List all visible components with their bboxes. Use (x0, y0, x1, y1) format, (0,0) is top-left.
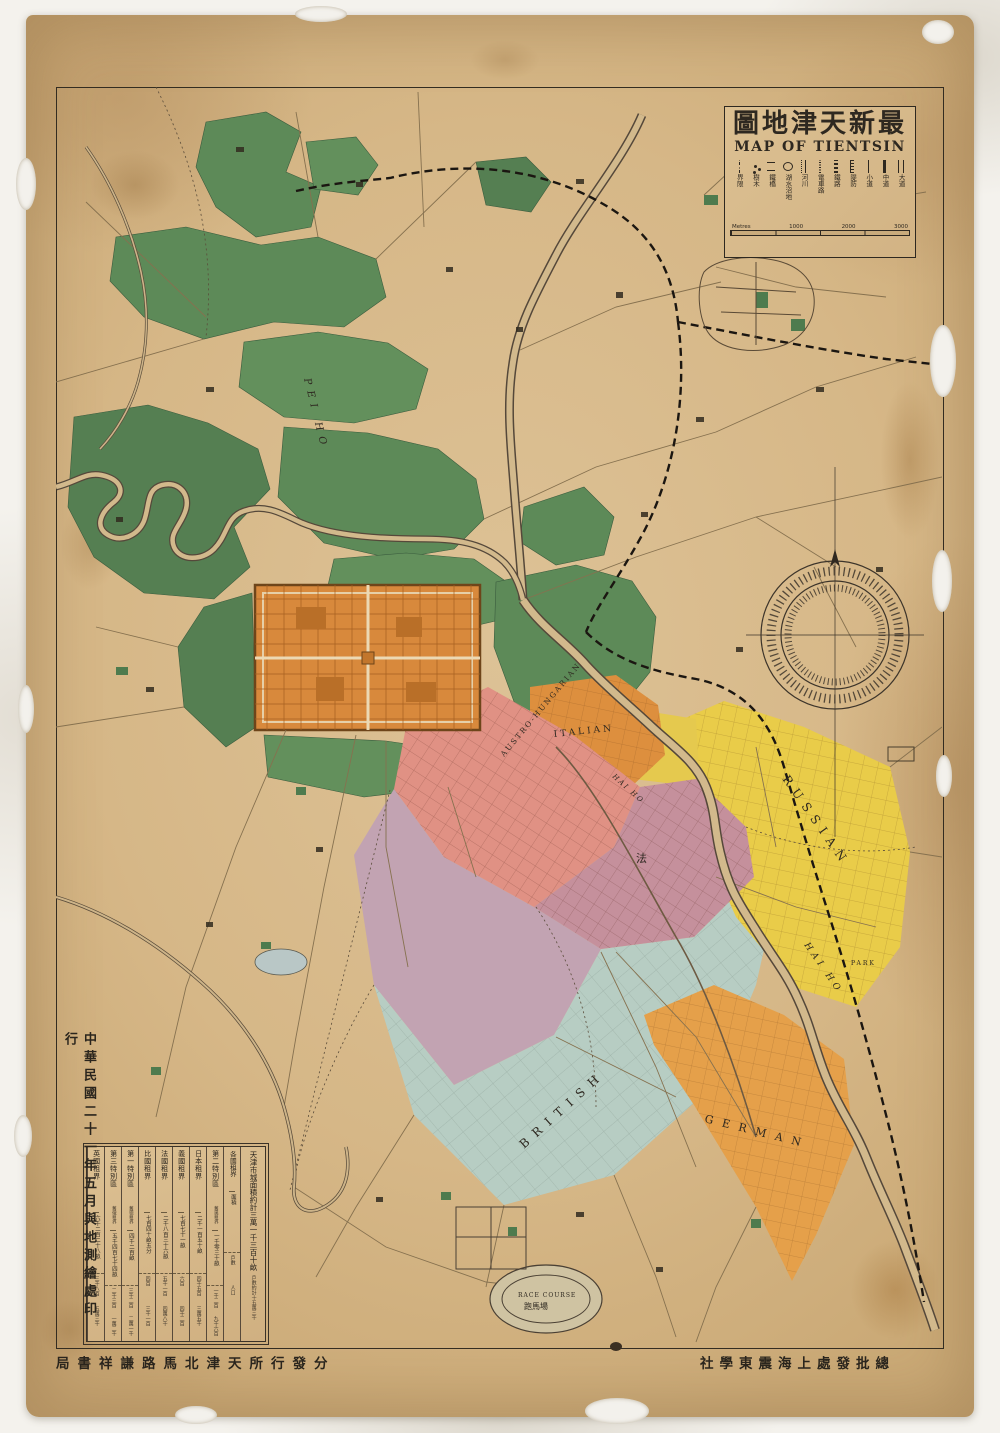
legend-item: 界限 (732, 159, 746, 221)
scale-tick: 1000 (789, 224, 803, 230)
old-walled-city (255, 585, 480, 730)
scale-unit: Metres (732, 224, 751, 230)
concession-statistics-table: 天津市城面積約計三萬一千三百十畝 戶數約計十五萬三千 各國租界 面積 戶數 人口… (86, 1146, 266, 1342)
legend-item: 中道 (878, 159, 892, 221)
lake-symbol-icon (783, 159, 793, 174)
distributor-line: 局書祥謙路馬北津天所行發分 (56, 1352, 336, 1372)
title-legend-box: 圖地津天新最 MAP OF TIENTSIN 大道 中道 小道 隄防 鐵路 電車… (724, 106, 916, 258)
bridge-symbol-icon (767, 159, 775, 174)
legend-item: 電車路 (813, 159, 827, 221)
legend-item: 河川 (797, 159, 811, 221)
label-park: PARK (851, 960, 876, 967)
ink-blot (610, 1342, 622, 1351)
legend-item: 湖水沼地 (781, 159, 795, 221)
legend-item: 小道 (862, 159, 876, 221)
table-column: 比國租界 七百四十畝五分 四百 三千一百 (138, 1147, 155, 1341)
scanned-map-page: { "title": { "chinese_reading": "最新天津地圖"… (0, 0, 1000, 1433)
table-header-column: 天津市城面積約計三萬一千三百十畝 戶數約計十五萬三千 (240, 1147, 265, 1341)
torn-edge (922, 20, 954, 44)
map-title-english: MAP OF TIENTSIN (730, 139, 910, 155)
legend-item: 隄防 (845, 159, 859, 221)
table-column: 義國租界 七百七十一畝 六百 四千二百 (172, 1147, 189, 1341)
torn-edge (14, 1115, 32, 1157)
table-column: 第二特別區 舊奧租界 一千零三十畝 一千二百 九千六百 (206, 1147, 223, 1341)
torn-edge (295, 6, 347, 22)
scale-tick: 2000 (842, 224, 856, 230)
scale-tick: 3000 (894, 224, 908, 230)
boundary-symbol-icon (739, 159, 740, 174)
tram-symbol-icon (819, 159, 821, 174)
torn-edge (930, 325, 956, 397)
legend: 大道 中道 小道 隄防 鐵路 電車路 河川 湖水沼地 鐵橋 樹木 界限 (730, 159, 910, 221)
tree-symbol-icon (754, 159, 757, 174)
table-column: 法國租界 二千八百三十六畝 五千一百 四萬八千 (155, 1147, 172, 1341)
label-race-course-cn: 跑馬場 (524, 1301, 548, 1311)
torn-edge (936, 755, 952, 797)
table-column: 第一特別區 舊德租界 四千二百畝 三千二百 二萬一千 (121, 1147, 138, 1341)
scale-bar-rule (730, 230, 910, 236)
legend-item: 鐵橋 (764, 159, 778, 221)
main-road-symbol-icon (898, 159, 904, 174)
pond (255, 949, 307, 975)
map-title-chinese: 圖地津天新最 (730, 111, 910, 138)
table-column: 日本租界 二千一百五十畝 四千五百 三萬五千 (189, 1147, 206, 1341)
torn-edge (175, 1406, 217, 1424)
torn-edge (585, 1398, 649, 1424)
table-rowlabel-column: 各國租界 面積 戶數 人口 (223, 1147, 240, 1341)
label-race-course: RACE COURSE (518, 1292, 576, 1299)
middle-road-symbol-icon (883, 159, 886, 174)
railway-symbol-icon (834, 159, 838, 174)
torn-edge (18, 685, 34, 733)
torn-edge (932, 550, 952, 612)
scale-bar: Metres 1000 2000 3000 (730, 224, 910, 236)
river-symbol-icon (801, 159, 806, 174)
wholesale-line: 社學東震海上處發批總 (700, 1352, 895, 1372)
label-french-cn: 法 (636, 851, 647, 865)
legend-item: 大道 (894, 159, 908, 221)
publication-date-vertical: 中華民國二十一年五月與地測繪處印行 (60, 1032, 98, 1322)
legend-item: 鐵路 (829, 159, 843, 221)
torn-edge (16, 158, 36, 210)
small-road-symbol-icon (868, 159, 869, 174)
table-column: 第三特別區 舊俄租界 五千四百七十四畝 二千三百 一萬二千 (104, 1147, 121, 1341)
dike-symbol-icon (850, 159, 854, 174)
race-course (456, 1207, 602, 1333)
legend-item: 樹木 (748, 159, 762, 221)
